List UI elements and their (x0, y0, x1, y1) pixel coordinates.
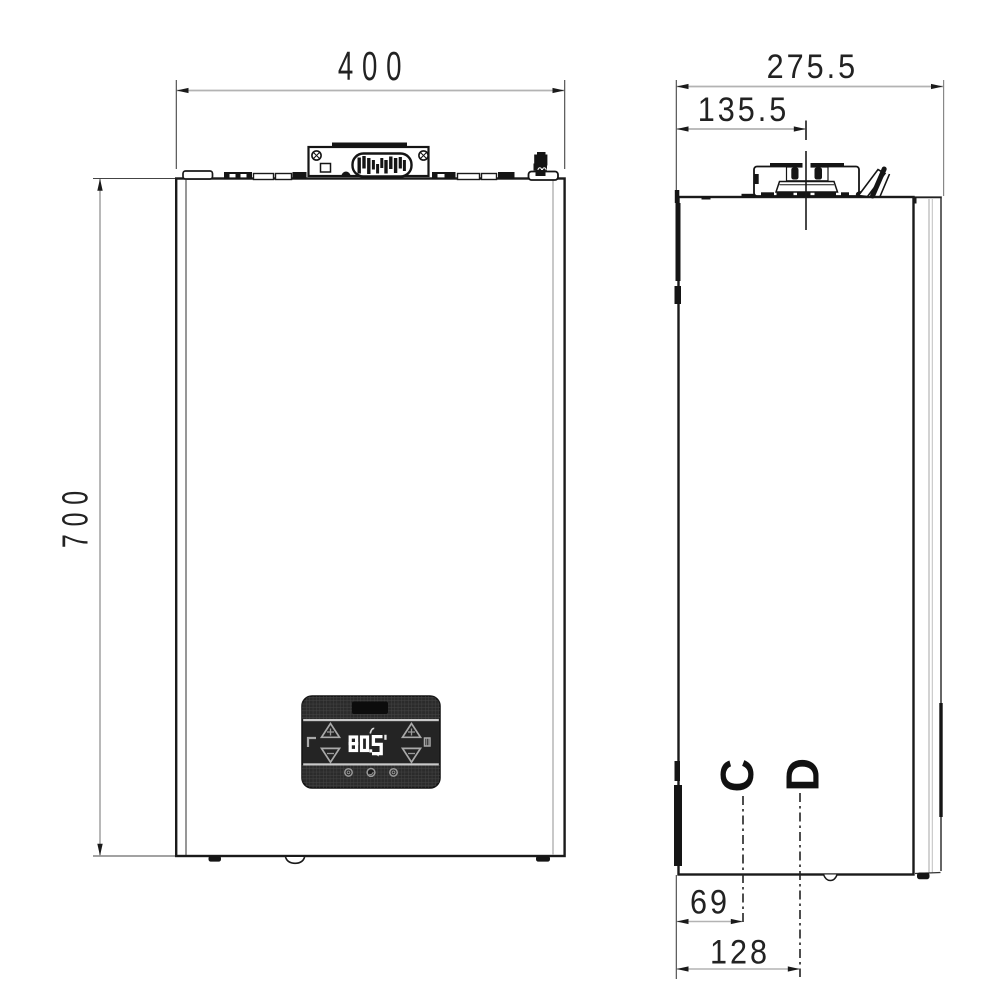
svg-text:C: C (711, 759, 763, 793)
svg-text:700: 700 (55, 483, 96, 548)
svg-text:128: 128 (710, 933, 770, 971)
svg-text:275.5: 275.5 (767, 48, 858, 86)
svg-text:69: 69 (690, 883, 730, 921)
svg-text:135.5: 135.5 (698, 91, 789, 129)
svg-text:400: 400 (338, 44, 410, 90)
svg-text:D: D (776, 758, 828, 792)
